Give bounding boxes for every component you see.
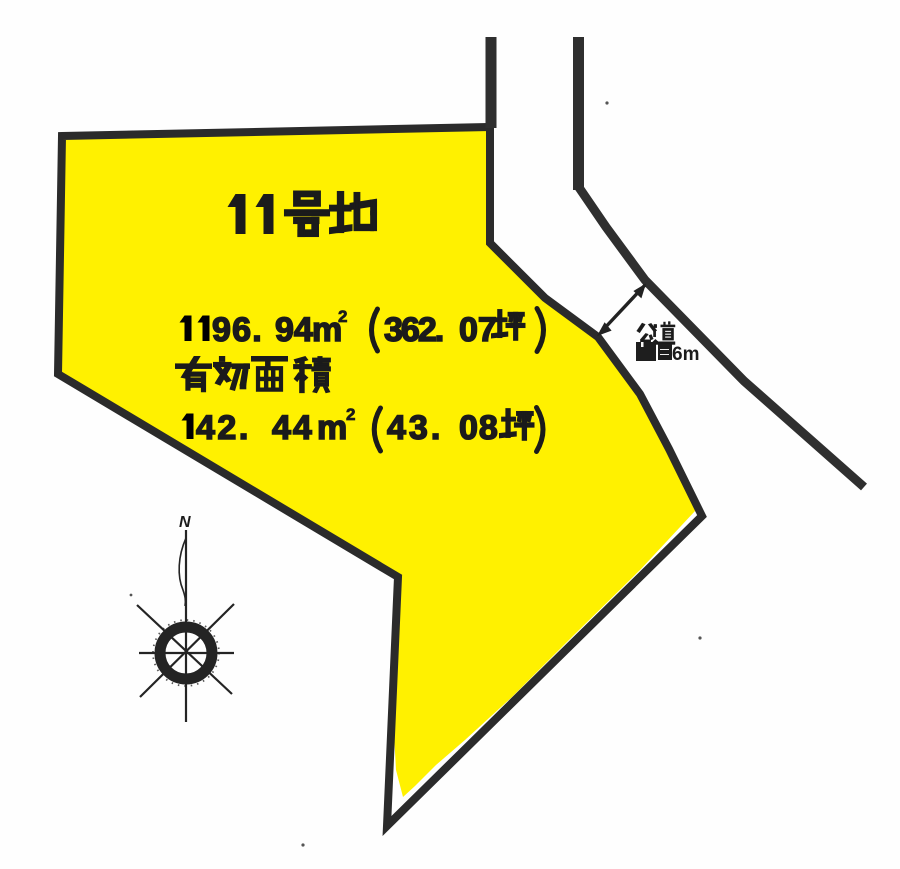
svg-text:43.: 43. xyxy=(387,409,443,447)
svg-text:96.: 96. xyxy=(212,311,263,349)
svg-text:42.: 42. xyxy=(196,409,251,447)
svg-text:6m: 6m xyxy=(672,344,699,365)
svg-text:94: 94 xyxy=(275,311,313,349)
svg-text:08: 08 xyxy=(459,409,499,447)
svg-text:2: 2 xyxy=(338,307,347,326)
svg-text:N: N xyxy=(179,514,191,531)
svg-text:07: 07 xyxy=(459,311,497,349)
svg-text:362.: 362. xyxy=(384,311,443,349)
svg-text:m: m xyxy=(317,409,347,447)
svg-text:44: 44 xyxy=(272,409,314,447)
svg-text:2: 2 xyxy=(346,405,355,424)
